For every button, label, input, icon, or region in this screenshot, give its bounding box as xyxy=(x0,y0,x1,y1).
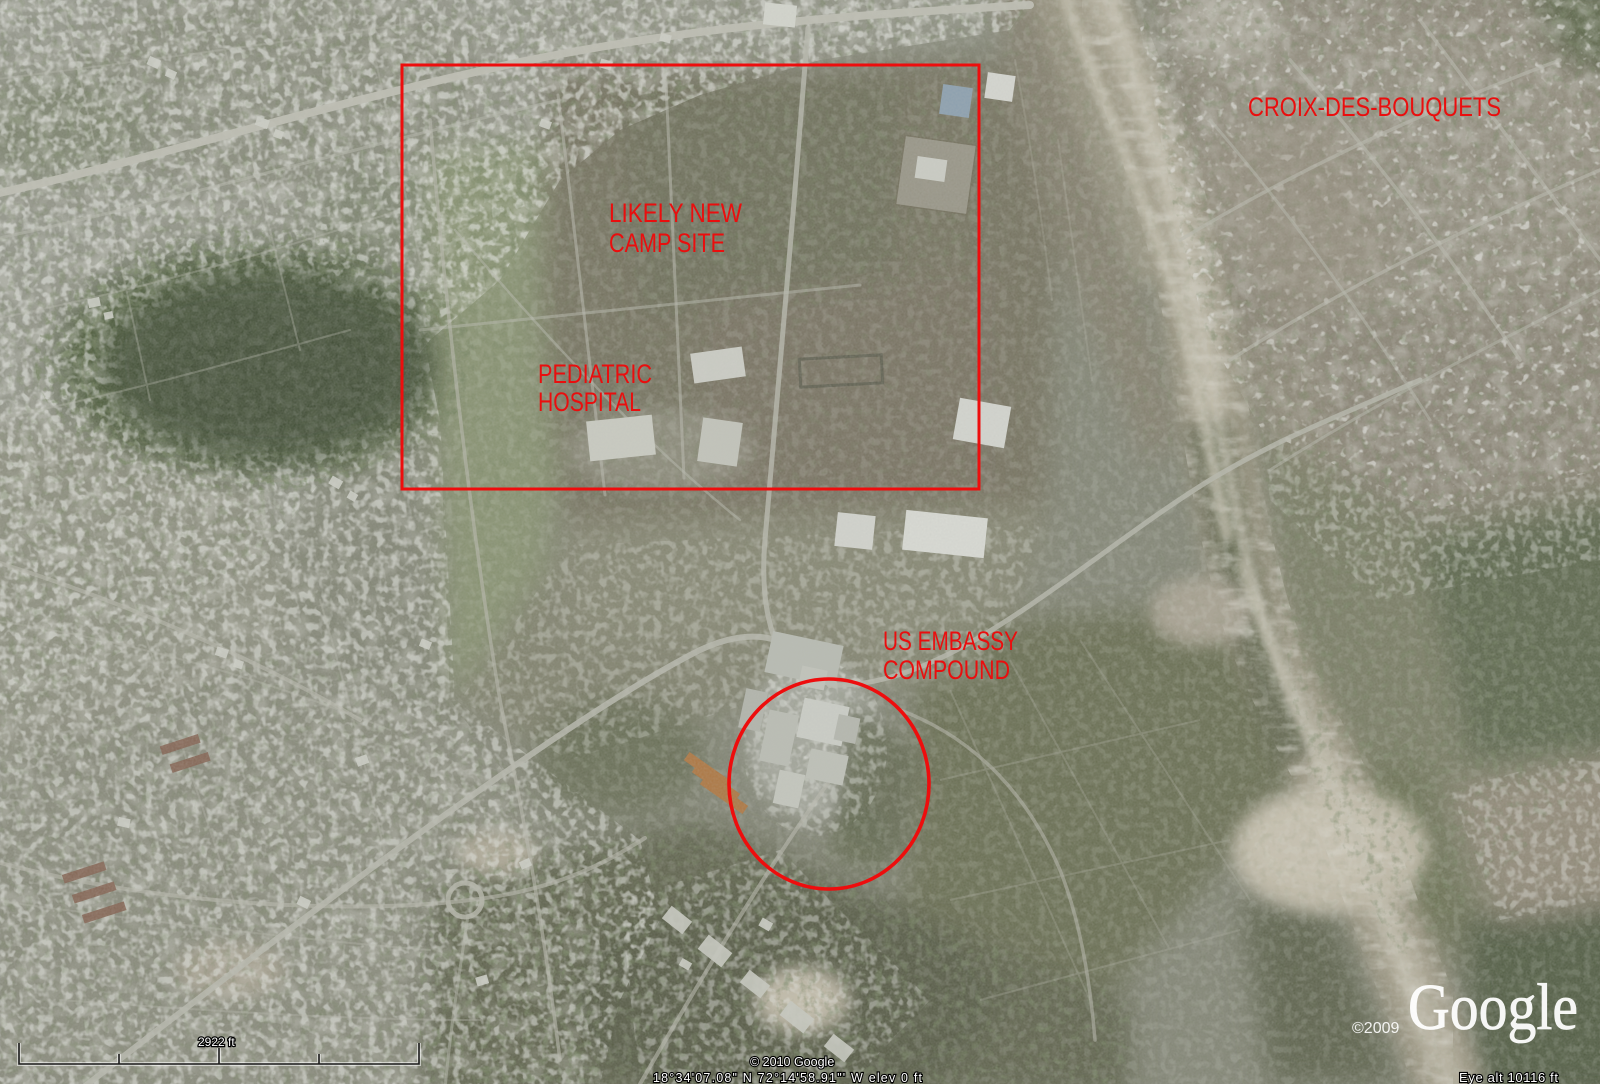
svg-text:US EMBASSY: US EMBASSY xyxy=(883,626,1018,656)
svg-text:18°34'07.08" N 72°14'58.91": 18°34'07.08" N 72°14'58.91"' W elev 0 ft xyxy=(653,1071,923,1084)
svg-text:Google: Google xyxy=(1408,971,1578,1044)
svg-text:PEDIATRIC: PEDIATRIC xyxy=(538,359,652,389)
svg-text:©2009: ©2009 xyxy=(1352,1020,1399,1037)
svg-text:2922 ft: 2922 ft xyxy=(198,1035,235,1049)
svg-text:HOSPITAL: HOSPITAL xyxy=(538,387,641,417)
svg-text:COMPOUND: COMPOUND xyxy=(883,655,1010,685)
svg-text:CROIX-DES-BOUQUETS: CROIX-DES-BOUQUETS xyxy=(1248,92,1501,122)
svg-text:Eye alt 10116 ft: Eye alt 10116 ft xyxy=(1459,1070,1558,1084)
svg-text:© 2010 Google: © 2010 Google xyxy=(750,1055,834,1069)
svg-text:CAMP SITE: CAMP SITE xyxy=(609,228,725,258)
svg-text:LIKELY NEW: LIKELY NEW xyxy=(609,198,742,228)
